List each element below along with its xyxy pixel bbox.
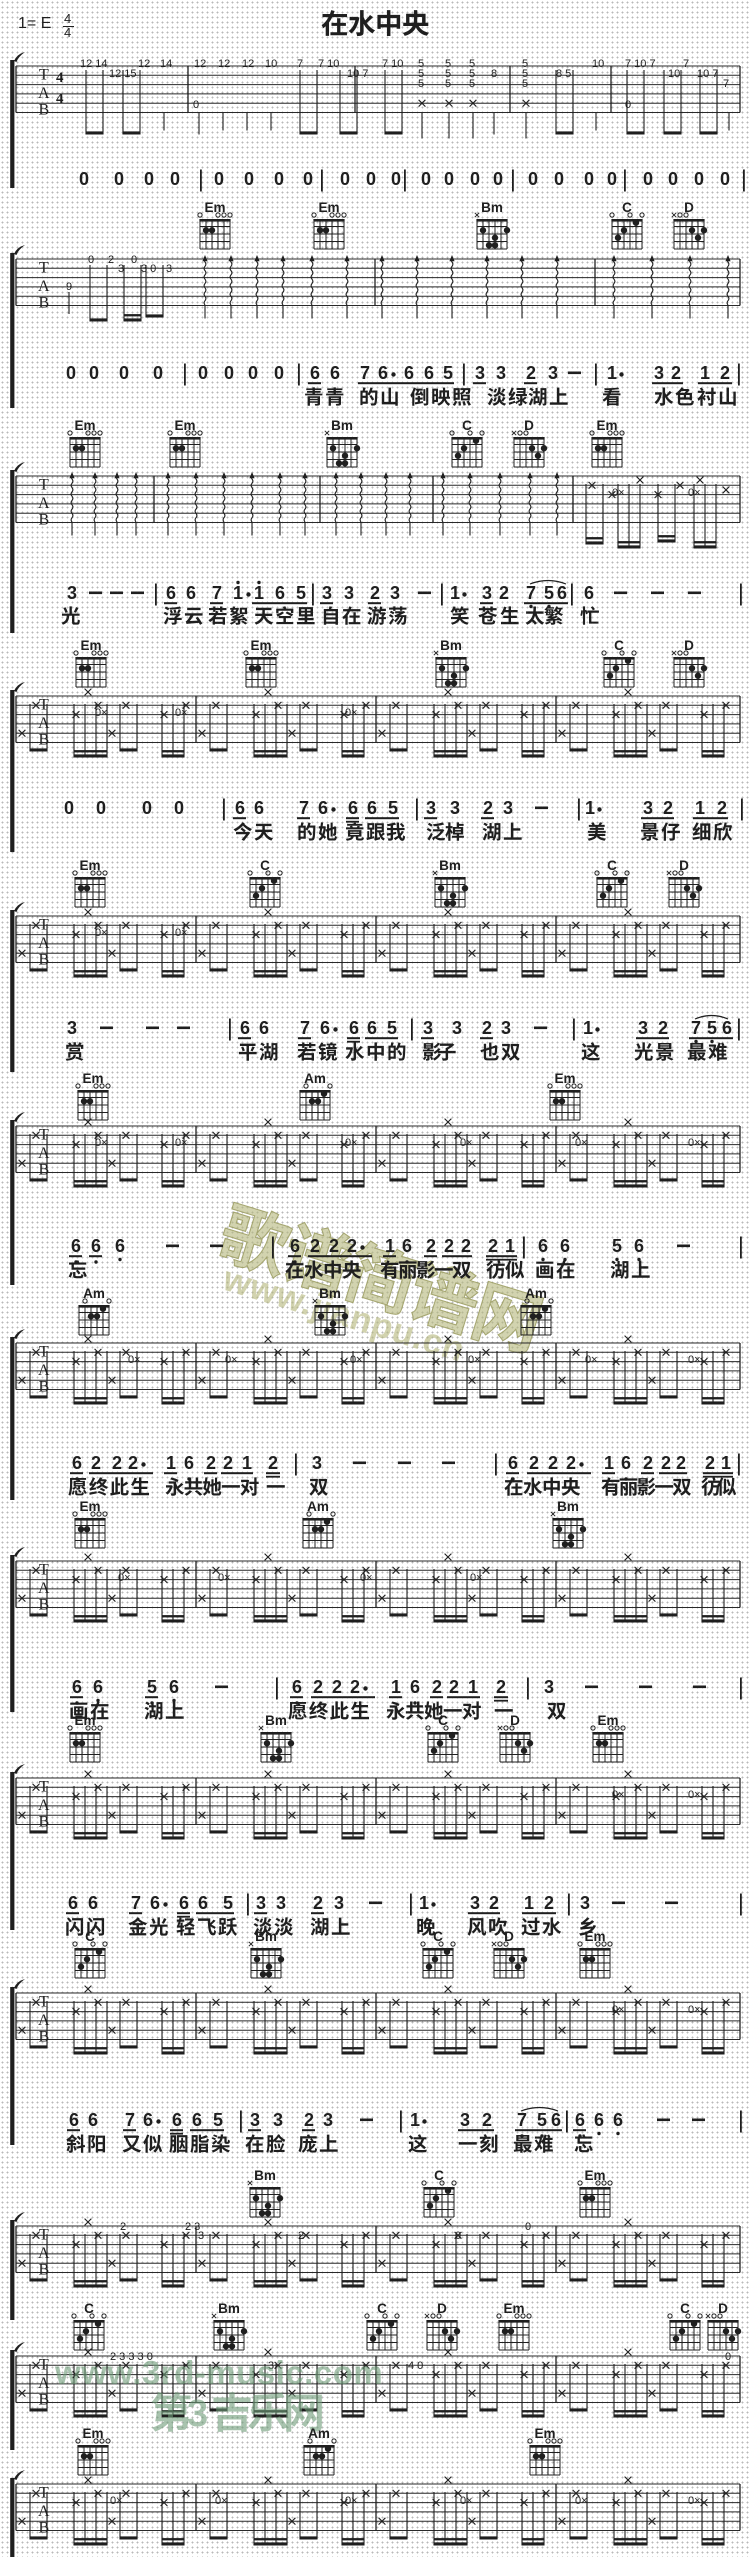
svg-text:5: 5: [147, 1677, 157, 1697]
svg-text:3: 3: [166, 263, 172, 275]
svg-text:0×: 0×: [585, 1354, 598, 1366]
svg-text:6: 6: [330, 363, 340, 383]
svg-text:6: 6: [166, 583, 176, 603]
svg-text:0×: 0×: [95, 927, 108, 939]
svg-text:1: 1: [242, 1453, 252, 1473]
svg-text:0×: 0×: [215, 2495, 228, 2507]
svg-text:0×: 0×: [128, 1354, 141, 1366]
svg-text:B: B: [39, 2392, 50, 2409]
svg-text:6: 6: [235, 798, 245, 818]
svg-text:12: 12: [138, 58, 150, 70]
svg-text:3: 3: [334, 1893, 344, 1913]
svg-text:7: 7: [299, 798, 309, 818]
svg-text:3: 3: [643, 798, 653, 818]
svg-text:3: 3: [344, 583, 354, 603]
svg-text:0×: 0×: [688, 2004, 701, 2016]
svg-text:3: 3: [256, 1893, 266, 1913]
svg-text:0: 0: [528, 169, 538, 189]
svg-text:14: 14: [160, 58, 172, 70]
svg-text:5: 5: [387, 1018, 397, 1038]
svg-text:0×: 0×: [460, 1137, 473, 1149]
svg-text:3: 3: [323, 2110, 333, 2130]
svg-text:T: T: [39, 260, 49, 277]
svg-text:6: 6: [179, 1893, 189, 1913]
svg-text:A: A: [38, 2245, 50, 2262]
svg-text:0×: 0×: [688, 1137, 701, 1149]
svg-text:6: 6: [320, 1018, 330, 1038]
svg-text:2: 2: [444, 1236, 454, 1256]
svg-text:2: 2: [499, 583, 509, 603]
svg-text:4 0: 4 0: [408, 2360, 423, 2372]
svg-text:A: A: [38, 2012, 50, 2029]
svg-text:5: 5: [296, 583, 306, 603]
svg-text:2: 2: [128, 1453, 138, 1473]
svg-text:2: 2: [206, 1453, 216, 1473]
svg-text:6: 6: [69, 2110, 79, 2130]
svg-text:6: 6: [402, 1236, 412, 1256]
svg-text:A: A: [38, 2375, 50, 2392]
svg-text:7: 7: [131, 1893, 141, 1913]
svg-text:6: 6: [88, 1893, 98, 1913]
svg-text:T: T: [39, 67, 49, 84]
svg-text:7: 7: [517, 2110, 527, 2130]
svg-text:6: 6: [290, 1236, 300, 1256]
svg-text:6: 6: [169, 1677, 179, 1697]
svg-text:0: 0: [421, 169, 431, 189]
svg-text:0: 0: [366, 169, 376, 189]
svg-text:3: 3: [423, 1018, 433, 1038]
svg-text:A: A: [38, 85, 50, 102]
svg-text:3: 3: [67, 1018, 77, 1038]
svg-text:1: 1: [700, 363, 710, 383]
svg-text:6: 6: [71, 1236, 81, 1256]
svg-text:0: 0: [720, 169, 730, 189]
svg-text:6: 6: [143, 2110, 153, 2130]
svg-text:1: 1: [607, 363, 617, 383]
svg-text:B: B: [39, 2029, 50, 2046]
svg-text:B: B: [39, 1162, 50, 1179]
svg-text:6: 6: [72, 1677, 82, 1697]
svg-text:2: 2: [313, 1893, 323, 1913]
svg-text:A: A: [38, 935, 50, 952]
svg-text:7: 7: [300, 1018, 310, 1038]
svg-text:3: 3: [67, 583, 77, 603]
svg-text:6: 6: [551, 2110, 561, 2130]
svg-text:2: 2: [268, 1453, 278, 1473]
svg-text:5: 5: [443, 363, 453, 383]
svg-text:2: 2: [313, 1677, 323, 1697]
svg-text:6: 6: [621, 1453, 631, 1473]
svg-text:6: 6: [348, 798, 358, 818]
svg-text:0: 0: [525, 2221, 531, 2233]
svg-text:2: 2: [489, 1893, 499, 1913]
svg-text:6: 6: [150, 1893, 160, 1913]
svg-text:2: 2: [432, 1677, 442, 1697]
svg-text:7: 7: [125, 2110, 135, 2130]
svg-text:2: 2: [526, 363, 536, 383]
svg-text:0: 0: [64, 798, 74, 818]
svg-text:2: 2: [298, 2230, 304, 2242]
svg-text:0×: 0×: [688, 2495, 701, 2507]
svg-text:3: 3: [452, 1018, 462, 1038]
svg-text:3: 3: [548, 363, 558, 383]
svg-text:1= E: 1= E: [18, 15, 51, 32]
svg-text:0×: 0×: [612, 487, 625, 499]
svg-text:7 10: 7 10: [318, 58, 339, 70]
svg-text:3: 3: [426, 798, 436, 818]
svg-text:A: A: [38, 1362, 50, 1379]
svg-text:T: T: [39, 477, 49, 494]
svg-text:7: 7: [691, 1018, 701, 1038]
svg-text:0: 0: [193, 99, 199, 111]
svg-text:0×: 0×: [575, 2495, 588, 2507]
svg-text:0: 0: [96, 798, 106, 818]
svg-text:6: 6: [72, 1453, 82, 1473]
svg-text:3: 3: [580, 1893, 590, 1913]
svg-text:2: 2: [663, 798, 673, 818]
svg-text:6: 6: [172, 2110, 182, 2130]
svg-text:3: 3: [482, 583, 492, 603]
svg-text:6: 6: [240, 1018, 250, 1038]
svg-text:6: 6: [410, 1677, 420, 1697]
svg-text:1: 1: [254, 583, 264, 603]
svg-text:2: 2: [329, 1236, 339, 1256]
svg-text:2: 2: [482, 1018, 492, 1038]
svg-text:A: A: [38, 495, 50, 512]
svg-text:0: 0: [248, 363, 258, 383]
svg-text:2: 2: [482, 2110, 492, 2130]
svg-text:1: 1: [233, 583, 243, 603]
svg-text:0: 0: [144, 169, 154, 189]
svg-text:0: 0: [694, 169, 704, 189]
svg-text:0×: 0×: [175, 927, 188, 939]
svg-text:0×: 0×: [688, 1354, 701, 1366]
svg-text:6: 6: [367, 1018, 377, 1038]
svg-text:2: 2: [676, 1453, 686, 1473]
svg-text:2: 2: [108, 254, 114, 266]
svg-text:0: 0: [455, 2230, 461, 2242]
svg-text:B: B: [39, 1597, 50, 1614]
svg-text:1: 1: [419, 1893, 429, 1913]
svg-text:8 5: 8 5: [556, 68, 571, 80]
svg-text:2: 2: [566, 1453, 576, 1473]
svg-text:6: 6: [88, 2110, 98, 2130]
svg-text:3: 3: [544, 1677, 554, 1697]
svg-text:3: 3: [198, 2230, 204, 2242]
svg-text:2: 2: [120, 2221, 126, 2233]
svg-text:6: 6: [404, 363, 414, 383]
svg-text:3: 3: [501, 1018, 511, 1038]
svg-text:0: 0: [470, 169, 480, 189]
svg-text:3: 3: [638, 1018, 648, 1038]
svg-text:7: 7: [212, 583, 222, 603]
svg-text:10 7: 10 7: [347, 68, 368, 80]
svg-text:2: 2: [91, 1453, 101, 1473]
svg-text:12: 12: [218, 58, 230, 70]
svg-text:0: 0: [153, 363, 163, 383]
svg-text:0×: 0×: [460, 2495, 473, 2507]
svg-text:2: 2: [350, 1677, 360, 1697]
svg-text:3: 3: [187, 2393, 208, 2435]
svg-text:0×: 0×: [218, 1572, 231, 1584]
svg-text:1: 1: [604, 1453, 614, 1473]
svg-text:2: 2: [661, 1453, 671, 1473]
svg-text:3: 3: [450, 798, 460, 818]
svg-text:4: 4: [56, 91, 64, 107]
svg-text:0: 0: [391, 169, 401, 189]
svg-text:1: 1: [391, 1677, 401, 1697]
svg-text:6: 6: [508, 1453, 518, 1473]
svg-text:2: 2: [310, 1236, 320, 1256]
svg-text:2: 2: [223, 1453, 233, 1473]
svg-text:0: 0: [303, 169, 313, 189]
svg-text:10: 10: [592, 58, 604, 70]
svg-text:0×: 0×: [688, 1789, 701, 1801]
svg-text:0: 0: [79, 169, 89, 189]
svg-text:0: 0: [214, 169, 224, 189]
svg-text:1: 1: [721, 1453, 731, 1473]
svg-text:B: B: [39, 2262, 50, 2279]
svg-text:B: B: [39, 512, 50, 529]
svg-text:5: 5: [445, 78, 451, 90]
svg-text:1: 1: [385, 1236, 395, 1256]
svg-text:0: 0: [131, 254, 137, 266]
svg-text:7 10 7: 7 10 7: [625, 58, 656, 70]
svg-text:0×: 0×: [575, 1137, 588, 1149]
svg-text:0×: 0×: [345, 707, 358, 719]
svg-text:B: B: [39, 102, 50, 119]
svg-text:B: B: [39, 2520, 50, 2537]
svg-text:2: 2: [671, 363, 681, 383]
svg-text:4: 4: [64, 25, 71, 40]
svg-text:6: 6: [259, 1018, 269, 1038]
svg-text:0: 0: [114, 169, 124, 189]
svg-text:0: 0: [89, 363, 99, 383]
svg-text:2: 2: [705, 1453, 715, 1473]
svg-text:6: 6: [275, 583, 285, 603]
svg-text:5: 5: [544, 583, 554, 603]
svg-text:0×: 0×: [110, 2495, 123, 2507]
svg-text:1: 1: [468, 1677, 478, 1697]
svg-text:6: 6: [538, 1236, 548, 1256]
svg-text:0: 0: [340, 169, 350, 189]
svg-text:0: 0: [198, 363, 208, 383]
svg-text:1: 1: [450, 583, 460, 603]
svg-text:6: 6: [575, 2110, 585, 2130]
svg-text:A: A: [38, 1145, 50, 1162]
svg-text:B: B: [39, 295, 50, 312]
svg-text:6: 6: [310, 363, 320, 383]
svg-text:4: 4: [64, 11, 71, 26]
svg-text:2: 2: [332, 1677, 342, 1697]
svg-text:0×: 0×: [175, 707, 188, 719]
svg-text:0×: 0×: [360, 1572, 373, 1584]
svg-text:0×: 0×: [612, 2004, 625, 2016]
svg-text:6: 6: [634, 1236, 644, 1256]
svg-text:0×: 0×: [345, 1137, 358, 1149]
svg-text:0: 0: [625, 99, 631, 111]
svg-text:9: 9: [66, 281, 72, 293]
svg-text:8: 8: [491, 68, 497, 80]
svg-text:3 0: 3 0: [141, 263, 156, 275]
svg-text:3: 3: [475, 363, 485, 383]
svg-text:7: 7: [683, 58, 689, 70]
svg-text:0: 0: [725, 2351, 731, 2363]
svg-text:12 14: 12 14: [80, 58, 108, 70]
svg-text:6: 6: [594, 2110, 604, 2130]
svg-text:0: 0: [274, 363, 284, 383]
svg-text:3: 3: [312, 1453, 322, 1473]
svg-text:2: 2: [304, 2110, 314, 2130]
svg-text:0×: 0×: [688, 487, 701, 499]
svg-text:3: 3: [276, 1893, 286, 1913]
svg-text:5: 5: [707, 1018, 717, 1038]
svg-text:5: 5: [223, 1893, 233, 1913]
svg-text:B: B: [39, 1379, 50, 1396]
svg-text:7 10: 7 10: [382, 58, 403, 70]
svg-text:B: B: [39, 1814, 50, 1831]
svg-text:3: 3: [654, 363, 664, 383]
svg-text:12: 12: [194, 58, 206, 70]
svg-text:6: 6: [367, 798, 377, 818]
svg-text:A: A: [38, 715, 50, 732]
svg-text:1: 1: [410, 2110, 420, 2130]
svg-text:0: 0: [554, 169, 564, 189]
svg-text:6: 6: [93, 1677, 103, 1697]
svg-text:6: 6: [349, 1018, 359, 1038]
svg-text:0×: 0×: [468, 1354, 481, 1366]
svg-text:6: 6: [378, 363, 388, 383]
svg-text:5: 5: [612, 1236, 622, 1256]
svg-text:2: 2: [370, 583, 380, 603]
svg-text:0: 0: [142, 798, 152, 818]
svg-text:0×: 0×: [470, 1572, 483, 1584]
svg-text:A: A: [38, 278, 50, 295]
svg-text:1: 1: [166, 1453, 176, 1473]
svg-text:2: 2: [347, 1236, 357, 1256]
svg-text:6: 6: [91, 1236, 101, 1256]
svg-text:6: 6: [198, 1893, 208, 1913]
svg-text:3: 3: [273, 2110, 283, 2130]
svg-text:3: 3: [496, 363, 506, 383]
svg-text:0×: 0×: [225, 1354, 238, 1366]
svg-text:1: 1: [524, 1893, 534, 1913]
svg-text:6: 6: [254, 798, 264, 818]
svg-text:0: 0: [119, 363, 129, 383]
svg-text:6: 6: [722, 1018, 732, 1038]
svg-text:2: 2: [720, 363, 730, 383]
svg-text:4: 4: [56, 70, 64, 86]
svg-text:6: 6: [68, 1893, 78, 1913]
svg-text:0×: 0×: [345, 2495, 358, 2507]
svg-text:0: 0: [174, 798, 184, 818]
svg-text:1: 1: [505, 1236, 515, 1256]
svg-text:7: 7: [360, 363, 370, 383]
svg-text:0: 0: [88, 254, 94, 266]
svg-text:2: 2: [658, 1018, 668, 1038]
svg-text:A: A: [38, 1580, 50, 1597]
svg-text:2: 2: [461, 1236, 471, 1256]
svg-text:2: 2: [483, 798, 493, 818]
svg-text:0×: 0×: [118, 1572, 131, 1584]
svg-text:1: 1: [585, 798, 595, 818]
svg-text:www.3rd-music.com: www.3rd-music.com: [54, 2354, 383, 2391]
svg-text:0: 0: [668, 169, 678, 189]
svg-text:0×: 0×: [350, 1354, 363, 1366]
svg-text:6: 6: [613, 2110, 623, 2130]
svg-text:6: 6: [560, 1236, 570, 1256]
svg-text:0: 0: [244, 169, 254, 189]
svg-text:5: 5: [213, 2110, 223, 2130]
svg-text:2: 2: [426, 1236, 436, 1256]
svg-text:3: 3: [460, 2110, 470, 2130]
svg-text:A: A: [38, 1797, 50, 1814]
svg-text:6: 6: [557, 583, 567, 603]
svg-text:0×: 0×: [95, 707, 108, 719]
svg-text:0: 0: [607, 169, 617, 189]
svg-text:B: B: [39, 732, 50, 749]
svg-text:0: 0: [274, 169, 284, 189]
svg-text:2: 2: [449, 1677, 459, 1697]
svg-text:2: 2: [112, 1453, 122, 1473]
svg-text:0: 0: [643, 169, 653, 189]
svg-text:2: 2: [544, 1893, 554, 1913]
svg-text:6: 6: [192, 2110, 202, 2130]
svg-text:5: 5: [469, 78, 475, 90]
svg-text:6: 6: [292, 1677, 302, 1697]
svg-text:0: 0: [584, 169, 594, 189]
svg-text:0×: 0×: [175, 1137, 188, 1149]
svg-text:5: 5: [418, 78, 424, 90]
svg-text:3: 3: [250, 2110, 260, 2130]
svg-text:5: 5: [537, 2110, 547, 2130]
svg-text:3: 3: [503, 798, 513, 818]
svg-text:1: 1: [583, 1018, 593, 1038]
svg-text:10: 10: [265, 58, 277, 70]
svg-text:7: 7: [723, 78, 729, 90]
svg-text:7: 7: [297, 58, 303, 70]
svg-text:10: 10: [668, 68, 680, 80]
svg-text:2: 2: [496, 1677, 506, 1697]
svg-text:A: A: [38, 2503, 50, 2520]
svg-text:2: 2: [548, 1453, 558, 1473]
svg-text:2: 2: [488, 1236, 498, 1256]
svg-text:3: 3: [470, 1893, 480, 1913]
svg-text:2: 2: [643, 1453, 653, 1473]
svg-text:6: 6: [318, 798, 328, 818]
svg-text:3: 3: [322, 583, 332, 603]
svg-text:0: 0: [444, 169, 454, 189]
svg-text:0×: 0×: [95, 1137, 108, 1149]
svg-text:2: 2: [717, 798, 727, 818]
svg-text:0: 0: [66, 363, 76, 383]
svg-text:B: B: [39, 952, 50, 969]
svg-text:6: 6: [424, 363, 434, 383]
svg-text:0: 0: [170, 169, 180, 189]
svg-text:6: 6: [184, 1453, 194, 1473]
svg-text:5: 5: [388, 798, 398, 818]
svg-text:1: 1: [695, 798, 705, 818]
svg-text:12: 12: [242, 58, 254, 70]
svg-text:6: 6: [115, 1236, 125, 1256]
svg-text:6: 6: [584, 583, 594, 603]
svg-text:0×: 0×: [612, 1789, 625, 1801]
svg-text:2: 2: [529, 1453, 539, 1473]
svg-text:5: 5: [522, 78, 528, 90]
svg-text:3: 3: [390, 583, 400, 603]
svg-text:6: 6: [186, 583, 196, 603]
svg-text:3: 3: [118, 263, 124, 275]
